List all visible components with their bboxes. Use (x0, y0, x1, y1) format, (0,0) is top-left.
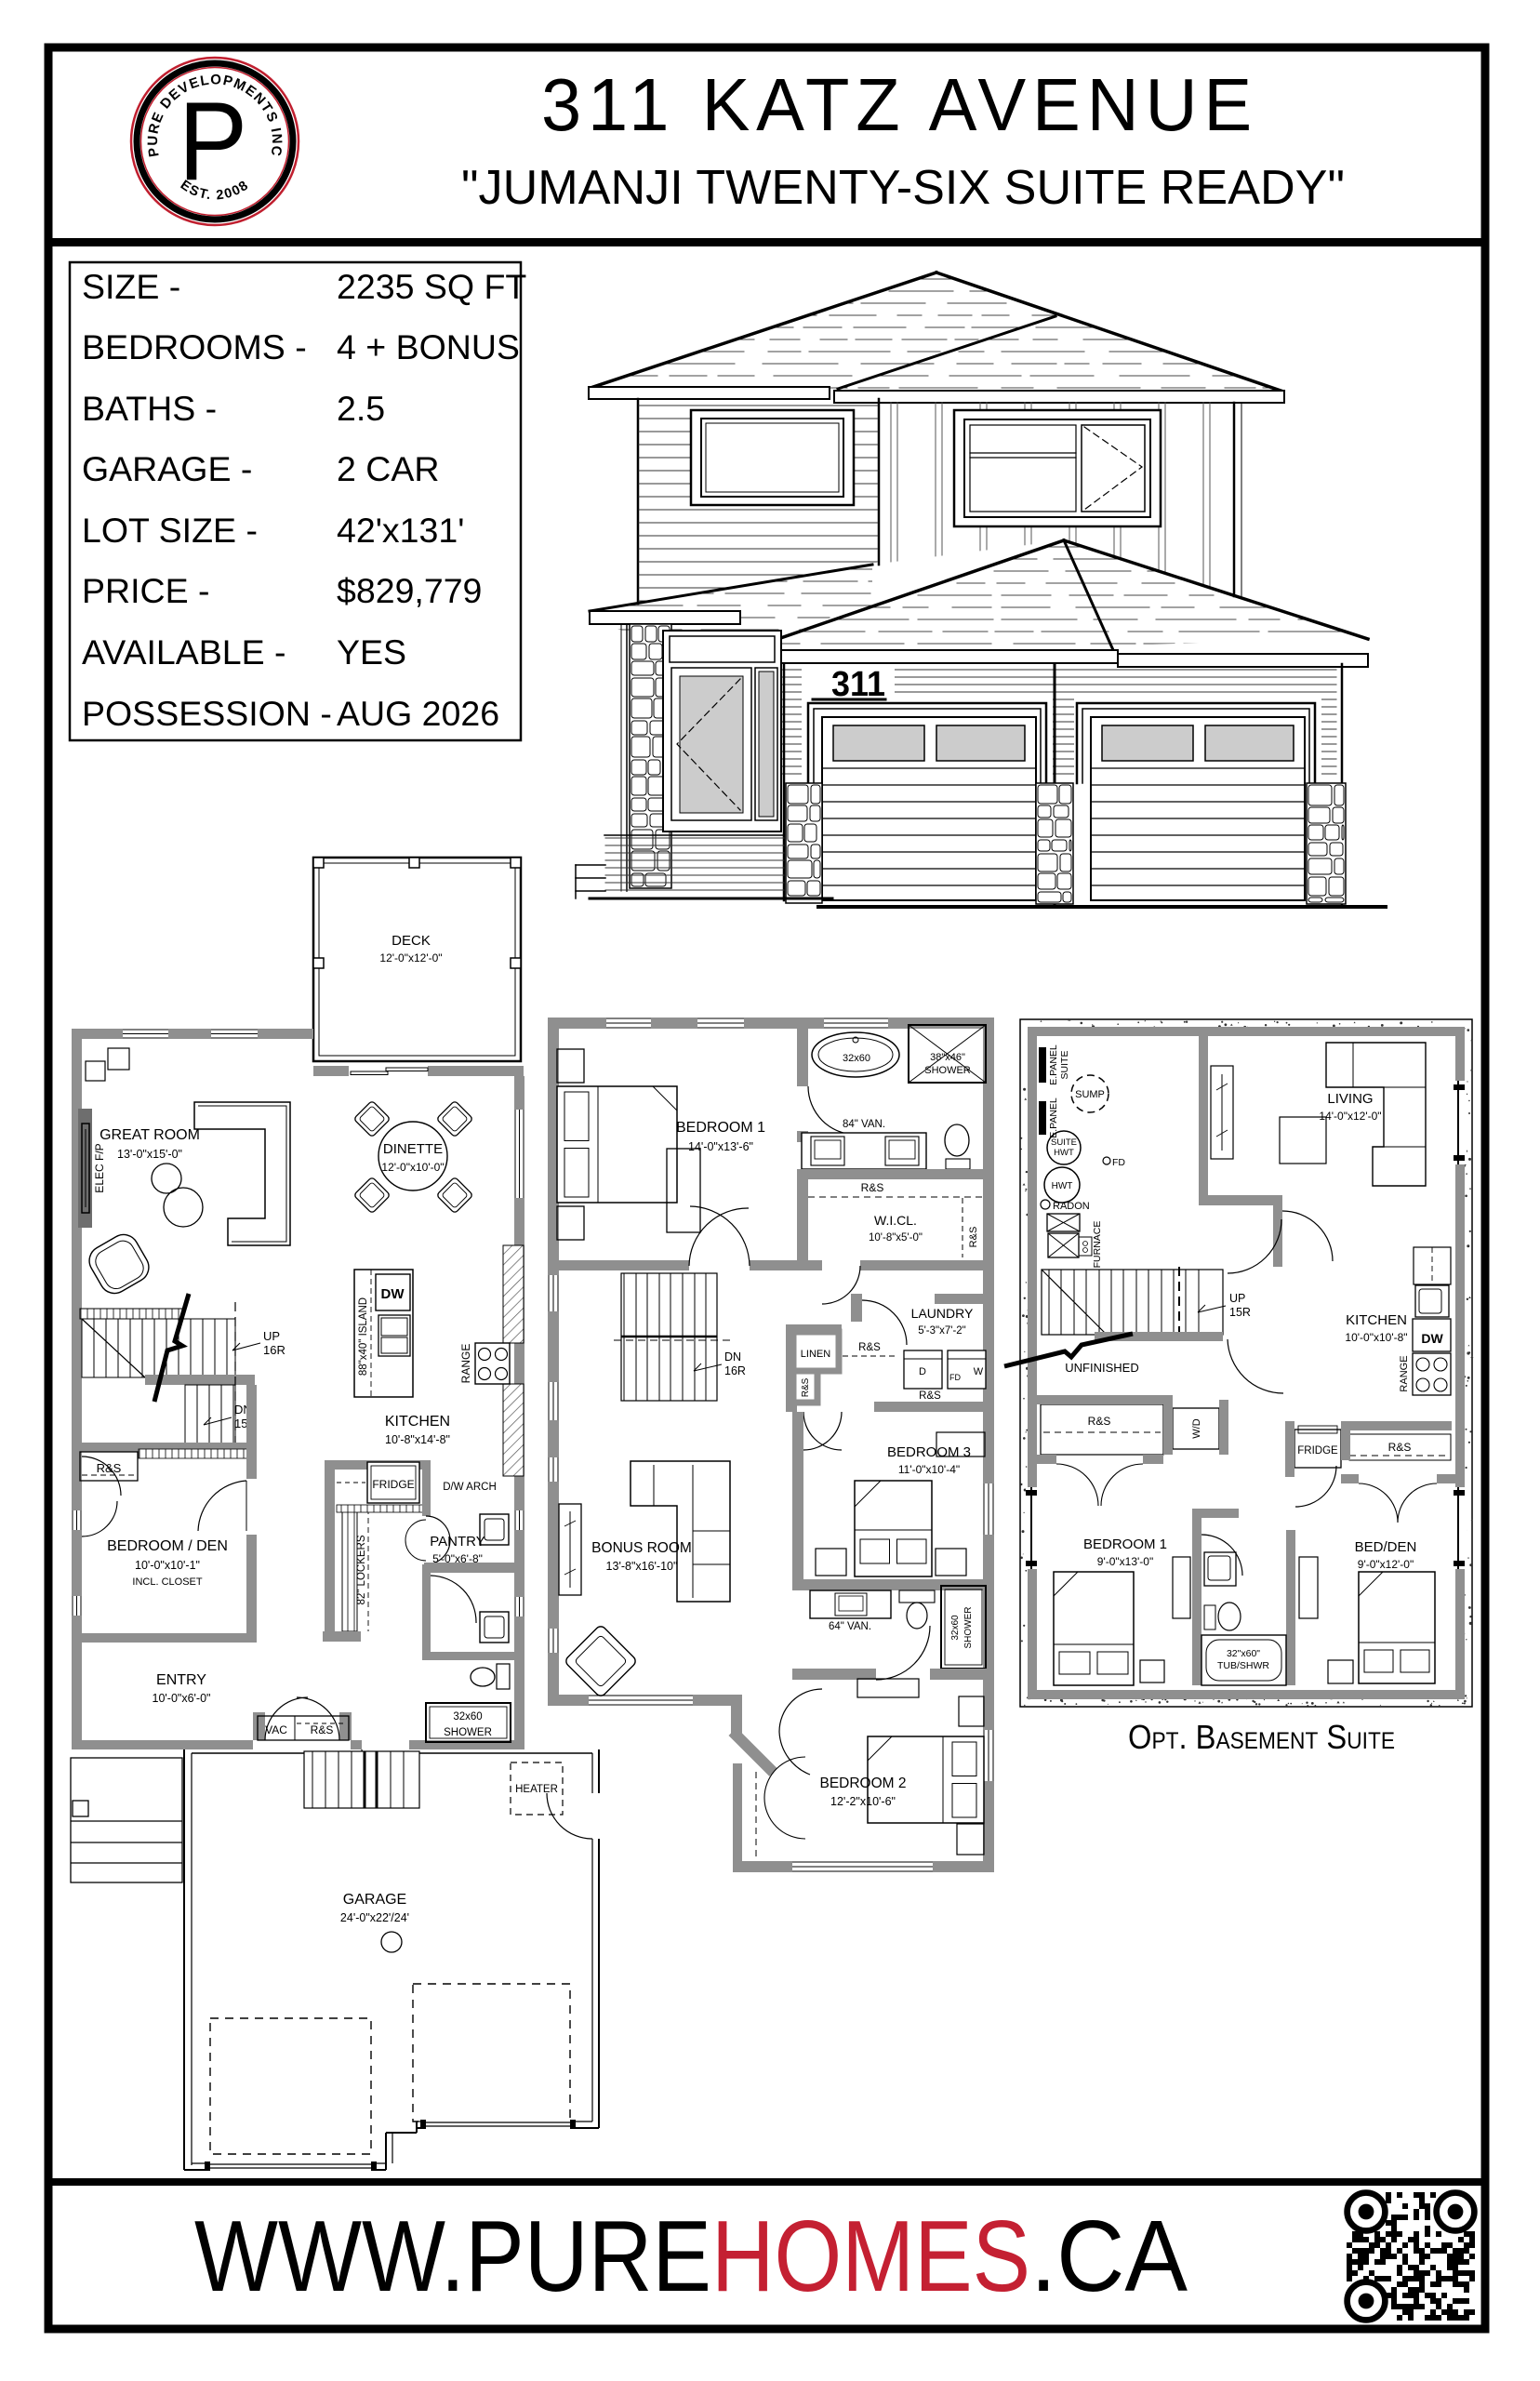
svg-text:LIVING: LIVING (1327, 1091, 1373, 1107)
svg-text:R&S: R&S (801, 1377, 811, 1397)
svg-text:SHOWER: SHOWER (444, 1727, 492, 1738)
svg-text:10'-8"x14'-8": 10'-8"x14'-8" (385, 1433, 450, 1446)
svg-text:R&S: R&S (1088, 1415, 1111, 1428)
svg-text:W: W (974, 1366, 984, 1377)
svg-text:RANGE: RANGE (1399, 1355, 1410, 1391)
svg-text:HWT: HWT (1054, 1148, 1074, 1158)
svg-text:BEDROOM 1: BEDROOM 1 (1083, 1536, 1167, 1552)
svg-text:BEDROOM 2: BEDROOM 2 (819, 1776, 906, 1791)
svg-text:15R: 15R (1229, 1306, 1251, 1319)
svg-text:RANGE: RANGE (459, 1344, 472, 1384)
svg-text:10'-0"x6'-0": 10'-0"x6'-0" (153, 1692, 211, 1705)
svg-text:AVAILABLE -: AVAILABLE - (82, 632, 286, 672)
svg-text:ELEC F/P: ELEC F/P (93, 1143, 106, 1192)
svg-text:5'-3"x7'-2": 5'-3"x7'-2" (918, 1325, 966, 1337)
svg-text:D/W ARCH: D/W ARCH (443, 1482, 497, 1493)
svg-text:UP: UP (1229, 1292, 1245, 1305)
svg-text:FD: FD (1112, 1157, 1125, 1168)
svg-text:R&S: R&S (1388, 1441, 1412, 1454)
svg-text:BATHS -: BATHS - (82, 389, 217, 428)
svg-text:R&S: R&S (919, 1390, 941, 1402)
svg-text:DW: DW (1421, 1331, 1443, 1346)
svg-text:9'-0"x12'-0": 9'-0"x12'-0" (1358, 1558, 1414, 1571)
svg-text:GARAGE -: GARAGE - (82, 449, 252, 488)
svg-text:BEDROOMS -: BEDROOMS - (82, 327, 307, 366)
svg-text:BEDROOM / DEN: BEDROOM / DEN (107, 1538, 228, 1554)
svg-text:TUB/SHWR: TUB/SHWR (1217, 1660, 1269, 1671)
svg-text:LINEN: LINEN (801, 1349, 830, 1360)
svg-text:ENTRY: ENTRY (156, 1672, 206, 1688)
svg-text:10'-0"x10'-8": 10'-0"x10'-8" (1345, 1331, 1407, 1344)
svg-text:Opt. Basement Suite: Opt. Basement Suite (1128, 1718, 1395, 1756)
svg-text:VAC: VAC (265, 1723, 287, 1736)
svg-text:SHOWER: SHOWER (963, 1607, 974, 1649)
svg-text:64" VAN.: 64" VAN. (829, 1621, 871, 1632)
svg-text:82" LOCKERS: 82" LOCKERS (356, 1535, 367, 1604)
svg-text:INCL. CLOSET: INCL. CLOSET (132, 1576, 202, 1588)
svg-text:HOMES: HOMES (711, 2200, 1030, 2313)
svg-text:GREAT ROOM: GREAT ROOM (100, 1127, 200, 1143)
svg-text:SHOWER: SHOWER (924, 1065, 971, 1076)
svg-text:FURNACE: FURNACE (1092, 1221, 1103, 1269)
svg-text:32x60: 32x60 (453, 1711, 482, 1723)
svg-text:11'-0"x10'-4": 11'-0"x10'-4" (898, 1463, 960, 1476)
svg-text:R&S: R&S (311, 1723, 334, 1736)
svg-text:BED/DEN: BED/DEN (1355, 1539, 1417, 1555)
svg-text:PANTRY: PANTRY (430, 1534, 485, 1550)
svg-text:DW: DW (381, 1286, 405, 1302)
svg-text:32"x60": 32"x60" (1227, 1648, 1260, 1659)
svg-text:LAUNDRY: LAUNDRY (911, 1306, 974, 1321)
svg-text:P: P (179, 78, 247, 204)
svg-text:311 KATZ AVENUE: 311 KATZ AVENUE (541, 63, 1258, 146)
svg-text:D: D (919, 1366, 926, 1377)
svg-text:10'-8"x5'-0": 10'-8"x5'-0" (869, 1232, 923, 1244)
svg-text:GARAGE: GARAGE (343, 1892, 406, 1908)
svg-text:R&S: R&S (861, 1181, 884, 1194)
svg-text:24'-0"x22'/24': 24'-0"x22'/24' (340, 1911, 409, 1924)
svg-text:E.PANEL: E.PANEL (1048, 1044, 1059, 1085)
svg-text:12'-0"x10'-0": 12'-0"x10'-0" (381, 1161, 444, 1174)
svg-text:12'-2"x10'-6": 12'-2"x10'-6" (830, 1795, 896, 1808)
svg-text:4 + BONUS: 4 + BONUS (337, 327, 520, 366)
svg-text:FD: FD (949, 1373, 961, 1382)
svg-text:.CA: .CA (1030, 2200, 1188, 2313)
svg-text:84" VAN.: 84" VAN. (843, 1119, 885, 1130)
svg-text:"JUMANJI TWENTY-SIX SUITE READ: "JUMANJI TWENTY-SIX SUITE READY" (461, 160, 1345, 214)
svg-text:FRIDGE: FRIDGE (372, 1478, 414, 1491)
svg-text:HWT: HWT (1052, 1181, 1073, 1191)
svg-text:88"x40" ISLAND: 88"x40" ISLAND (358, 1297, 369, 1376)
svg-text:14'-0"x12'-0": 14'-0"x12'-0" (1319, 1110, 1381, 1123)
svg-text:LOT SIZE -: LOT SIZE - (82, 511, 258, 550)
svg-text:SIZE -: SIZE - (82, 267, 180, 306)
svg-text:RADON: RADON (1053, 1201, 1090, 1212)
svg-text:2 CAR: 2 CAR (337, 449, 439, 488)
svg-text:HEATER: HEATER (515, 1784, 558, 1795)
svg-text:14'-0"x13'-6": 14'-0"x13'-6" (688, 1140, 753, 1153)
svg-text:POSSESSION -: POSSESSION - (82, 694, 332, 733)
svg-text:BEDROOM 3: BEDROOM 3 (887, 1444, 971, 1460)
svg-text:SUMP: SUMP (1075, 1089, 1105, 1100)
svg-text:2235 SQ FT: 2235 SQ FT (337, 267, 526, 306)
svg-text:13'-0"x15'-0": 13'-0"x15'-0" (117, 1148, 182, 1161)
svg-text:UP: UP (263, 1329, 280, 1343)
svg-text:R&S: R&S (968, 1227, 979, 1248)
svg-text:SUITE: SUITE (1059, 1051, 1070, 1080)
svg-text:BONUS ROOM: BONUS ROOM (591, 1540, 692, 1556)
svg-text:KITCHEN: KITCHEN (385, 1414, 450, 1430)
svg-text:DECK: DECK (392, 933, 431, 949)
svg-text:KITCHEN: KITCHEN (1346, 1312, 1407, 1328)
svg-text:38"x46": 38"x46" (930, 1052, 965, 1063)
svg-text:32x60: 32x60 (950, 1615, 961, 1641)
svg-text:32x60: 32x60 (843, 1053, 870, 1064)
svg-text:DN: DN (724, 1350, 741, 1363)
svg-text:$829,779: $829,779 (337, 571, 482, 610)
svg-text:WWW.PURE: WWW.PURE (194, 2200, 711, 2313)
svg-text:W.I.CL.: W.I.CL. (874, 1213, 917, 1228)
svg-text:SUITE: SUITE (1051, 1137, 1077, 1148)
svg-text:R&S: R&S (858, 1342, 881, 1353)
svg-text:FRIDGE: FRIDGE (1297, 1445, 1338, 1457)
svg-text:PRICE -: PRICE - (82, 571, 210, 610)
svg-text:42'x131': 42'x131' (337, 511, 464, 550)
svg-text:16R: 16R (724, 1364, 746, 1377)
svg-text:13'-8"x16'-10": 13'-8"x16'-10" (606, 1560, 678, 1573)
svg-text:BEDROOM 1: BEDROOM 1 (676, 1120, 765, 1136)
svg-text:12'-0"x12'-0": 12'-0"x12'-0" (379, 951, 442, 964)
svg-text:W/D: W/D (1191, 1418, 1202, 1438)
svg-text:2.5: 2.5 (337, 389, 385, 428)
svg-text:10'-0"x10'-1": 10'-0"x10'-1" (135, 1559, 200, 1572)
svg-text:5'-0"x6'-8": 5'-0"x6'-8" (432, 1552, 483, 1565)
svg-text:YES: YES (337, 632, 406, 672)
svg-text:UNFINISHED: UNFINISHED (1065, 1361, 1138, 1375)
svg-text:9'-0"x13'-0": 9'-0"x13'-0" (1097, 1555, 1153, 1568)
svg-text:AUG 2026: AUG 2026 (337, 694, 499, 733)
svg-text:16R: 16R (263, 1343, 285, 1357)
svg-text:DINETTE: DINETTE (383, 1141, 443, 1157)
